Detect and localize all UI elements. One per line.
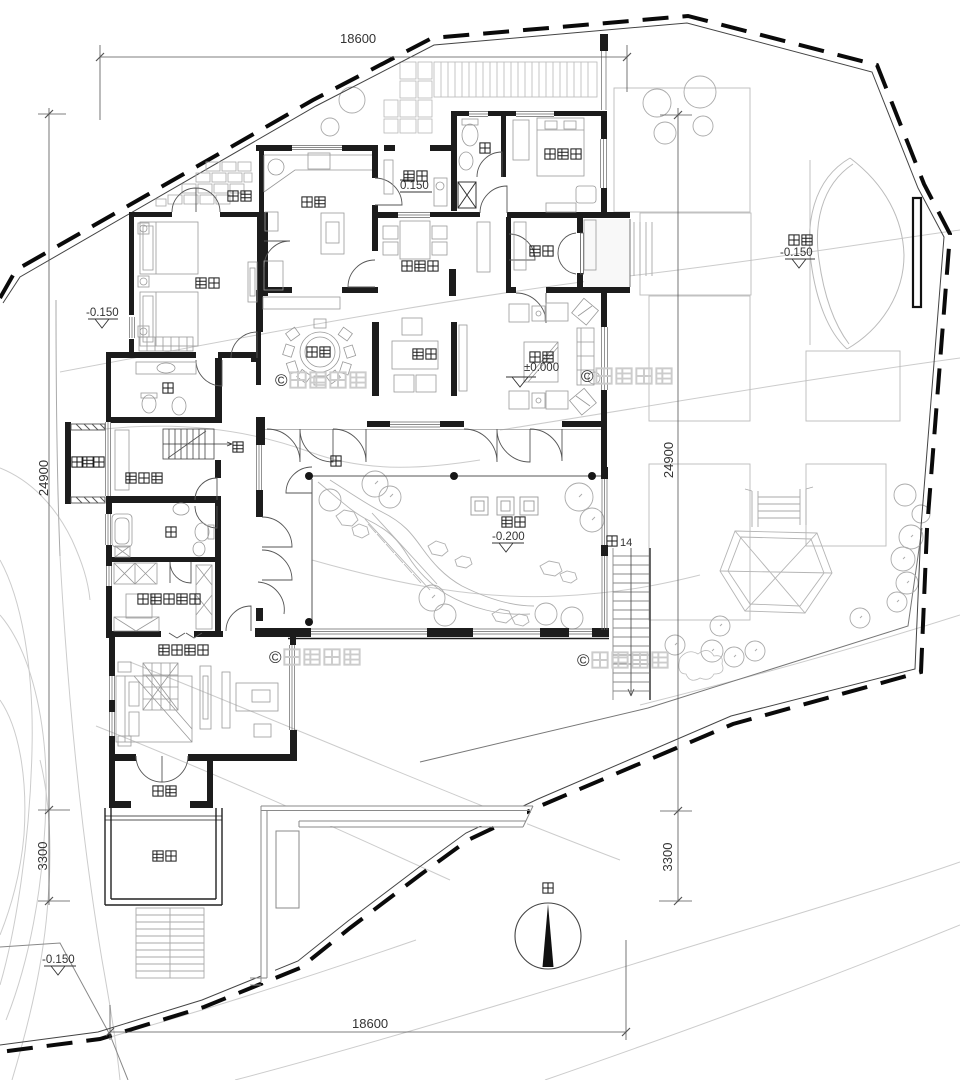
svg-text:©: © [275, 371, 288, 390]
svg-text:-0.150: -0.150 [86, 307, 119, 319]
svg-text:-0.200: -0.200 [492, 531, 525, 543]
svg-text:-0.150: -0.150 [42, 954, 75, 966]
svg-text:±0.000: ±0.000 [524, 362, 559, 374]
svg-text:©: © [269, 648, 282, 667]
svg-text:14: 14 [620, 537, 632, 549]
svg-text:3300: 3300 [660, 843, 675, 872]
svg-text:-0.150: -0.150 [780, 247, 813, 259]
svg-text:0.150: 0.150 [400, 180, 429, 192]
svg-text:24900: 24900 [36, 460, 51, 496]
svg-text:18600: 18600 [340, 31, 376, 46]
svg-text:18600: 18600 [352, 1016, 388, 1031]
svg-text:3300: 3300 [35, 842, 50, 871]
svg-text:©: © [577, 651, 590, 670]
svg-text:24900: 24900 [661, 442, 676, 478]
svg-text:©: © [581, 367, 594, 386]
